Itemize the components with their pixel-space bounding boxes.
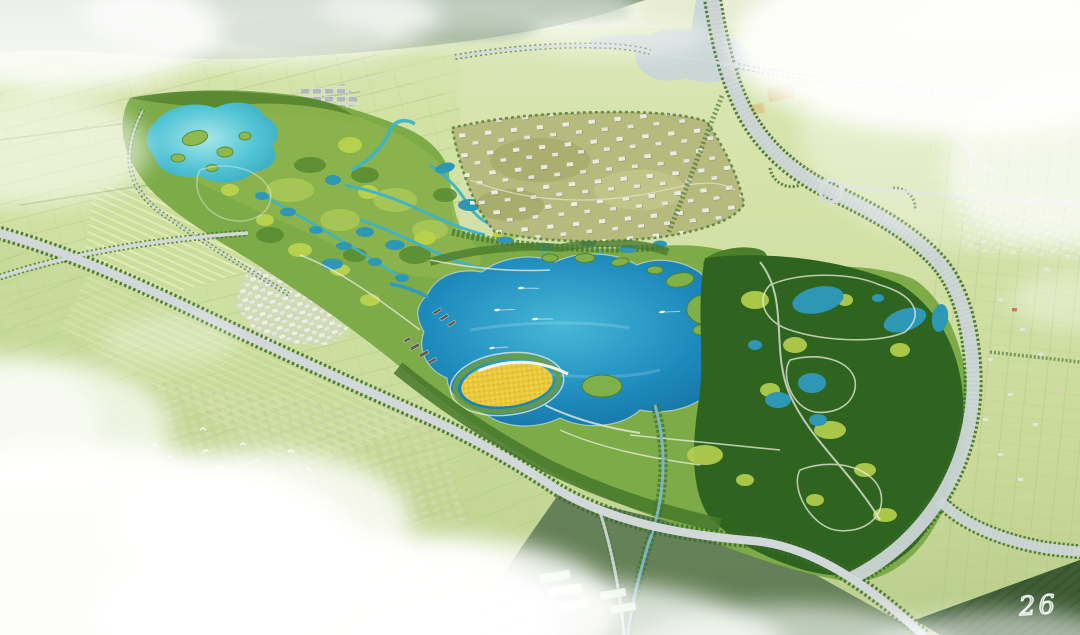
aerial-masterplan-rendering: 26: [0, 0, 1080, 635]
page-number-watermark: 26: [1018, 590, 1059, 623]
scene-canvas: [0, 0, 1080, 635]
villa-cluster: [452, 112, 744, 241]
upper-lake: [147, 102, 278, 182]
